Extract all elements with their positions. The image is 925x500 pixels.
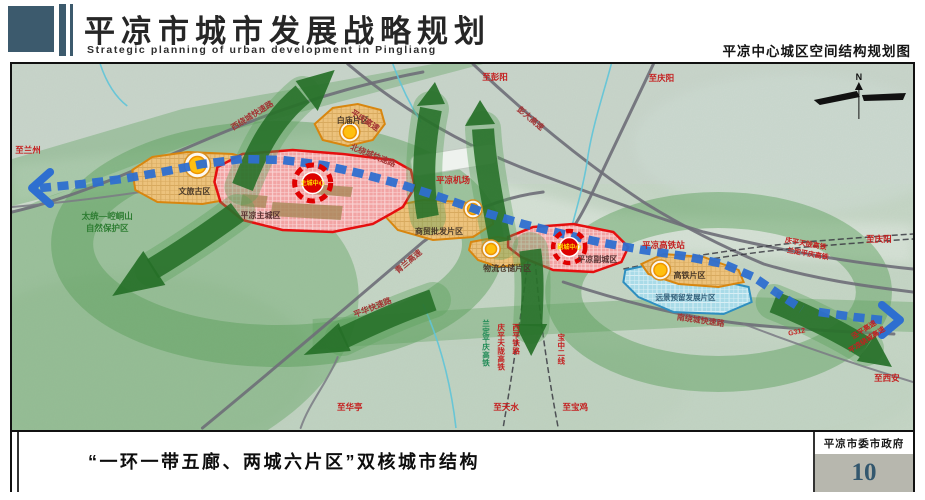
sub-center-label: 副城中心 <box>557 243 581 251</box>
district-trade-label: 商贸批发片区 <box>415 226 463 236</box>
to-qingyang-top-label: 至庆阳 <box>649 73 675 83</box>
to-xian-label: 至西安 <box>874 373 900 383</box>
district-reserved-label: 远景预留发展片区 <box>655 292 716 302</box>
qingping-rail-vertical-label: 庆平天陇高铁 <box>496 322 505 371</box>
header-bar-thick <box>59 4 66 56</box>
page: 平凉市城市发展战略规划 Strategic planning of urban … <box>0 0 925 500</box>
node-hsr <box>650 260 670 280</box>
planning-map: 主城中心 副城中心 文旅古区 平凉主城区 白庙片区 商贸批发片区 物流仓储片区 … <box>12 64 913 430</box>
to-baoji-label: 至宝鸡 <box>562 402 588 412</box>
district-hsr-label: 高铁片区 <box>673 270 705 280</box>
baozhong-line-vertical-label: 宝中二线 <box>557 332 565 366</box>
map-caption: 平凉中心城区空间结构规划图 <box>723 40 912 60</box>
map-svg: 主城中心 副城中心 文旅古区 平凉主城区 白庙片区 商贸批发片区 物流仓储片区 … <box>12 64 913 430</box>
authority-label: 平凉市委市政府 <box>815 432 913 454</box>
figure-footer: “一环一带五廊、两城六片区”双核城市结构 平凉市委市政府 10 <box>12 430 913 492</box>
airport-label: 平凉机场 <box>436 175 471 185</box>
to-lanzhou-label: 至兰州 <box>15 145 41 155</box>
district-sub-city-label: 平凉副城区 <box>577 254 617 264</box>
nature-reserve-label-2: 自然保护区 <box>86 223 129 233</box>
to-qingyang-right-label: 至庆阳 <box>866 234 892 244</box>
node-logistics <box>482 240 500 258</box>
page-subtitle-en: Strategic planning of urban development … <box>87 44 437 56</box>
district-main-city-label: 平凉主城区 <box>241 210 281 220</box>
arrow-south <box>530 250 532 326</box>
authority-box: 平凉市委市政府 10 <box>813 432 913 492</box>
node-baimiao <box>340 122 360 142</box>
header-bar-thin <box>70 4 73 56</box>
district-wenlu-label: 文旅古区 <box>178 186 210 196</box>
nature-reserve-label-1: 太统—崆峒山 <box>81 211 133 221</box>
to-huating-label: 至华亭 <box>337 402 363 412</box>
footer-inner-border <box>17 432 19 492</box>
arrow-north-1 <box>424 109 431 217</box>
structure-title: “一环一带五廊、两城六片区”双核城市结构 <box>88 448 480 474</box>
xiping-rail-vertical-label: 西平铁路 <box>512 323 520 356</box>
compass-north-label: N <box>856 72 863 82</box>
hsr-station-label: 平凉高铁站 <box>642 240 685 250</box>
page-number: 10 <box>815 454 913 492</box>
main-center-label: 主城中心 <box>301 179 325 187</box>
district-logistics-label: 物流仓储片区 <box>483 263 531 273</box>
logo-block <box>8 6 54 52</box>
to-pengyang-label: 至彭阳 <box>482 72 508 82</box>
figure-frame: 主城中心 副城中心 文旅古区 平凉主城区 白庙片区 商贸批发片区 物流仓储片区 … <box>10 62 915 492</box>
landing-rail-vertical-label: 兰定平庆高铁 <box>481 318 490 367</box>
to-tianshui-label: 至天水 <box>493 402 519 412</box>
